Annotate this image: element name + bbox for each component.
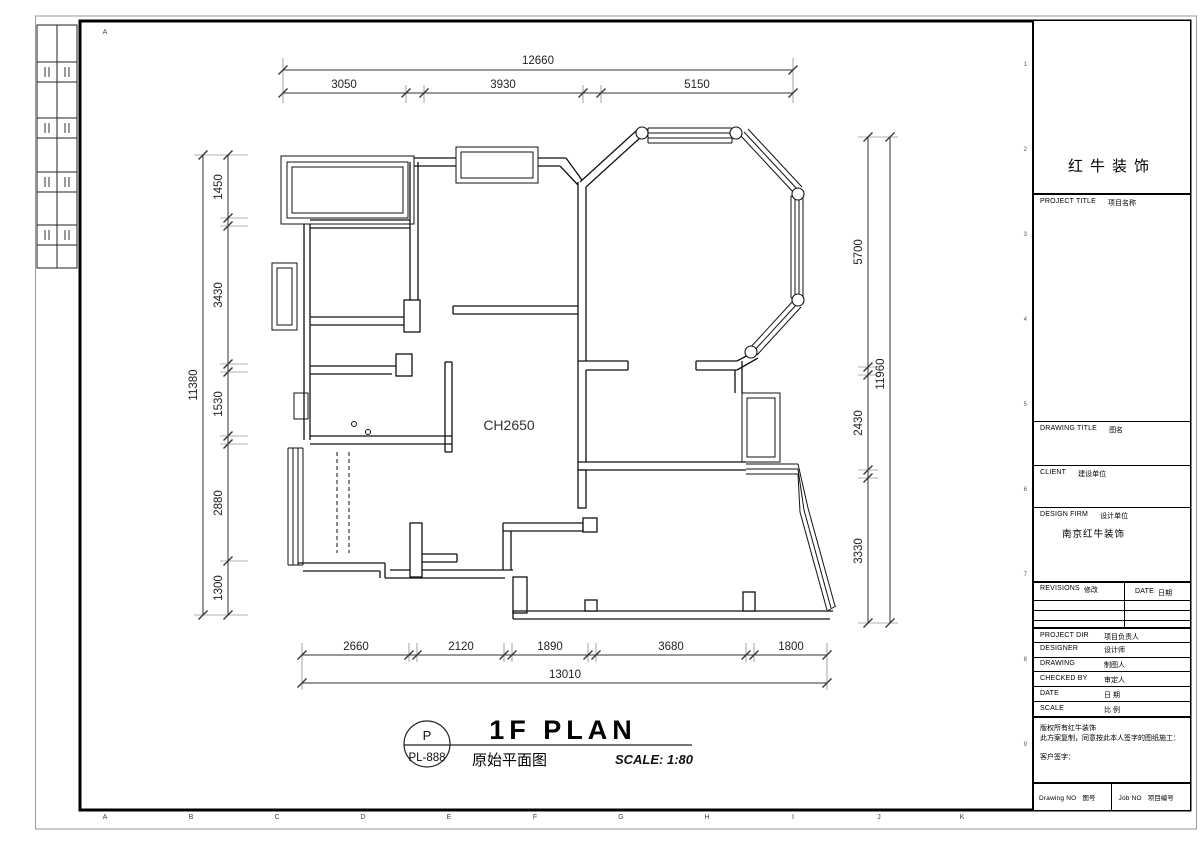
svg-text:C: C <box>274 814 279 821</box>
designer-row: DESIGNER设计师 <box>1034 642 1190 657</box>
client-signature-label: 客户签字： <box>1040 753 1188 763</box>
design-firm-label-zh: 设计单位 <box>1100 511 1128 521</box>
svg-text:4: 4 <box>1024 317 1028 323</box>
svg-text:2120: 2120 <box>448 641 474 653</box>
svg-text:6: 6 <box>1024 487 1028 493</box>
revisions-label-en: REVISIONS <box>1040 585 1080 592</box>
drawing-title-section: DRAWING TITLE 图名 <box>1034 421 1190 465</box>
revisions-label-zh: 修改 <box>1084 585 1098 595</box>
grid-letter-top: A <box>103 29 108 36</box>
svg-text:2660: 2660 <box>343 641 369 653</box>
checked-by-row: CHECKED BY审定人 <box>1034 671 1190 686</box>
project-title-label-zh: 项目名称 <box>1108 198 1136 208</box>
client-section: CLIENT 建设单位 <box>1034 465 1190 507</box>
left-reference-strip <box>37 25 77 268</box>
svg-text:1800: 1800 <box>778 641 804 653</box>
svg-text:5: 5 <box>1024 402 1028 408</box>
svg-text:5150: 5150 <box>684 79 710 91</box>
floor-plan-canvas: A A B C D E F G H I J K 1 2 3 4 5 6 7 8 … <box>0 0 1200 844</box>
svg-text:2880: 2880 <box>213 490 225 516</box>
svg-text:K: K <box>960 814 965 821</box>
brand-name: 红牛装饰 <box>1034 155 1190 176</box>
revisions-row <box>1034 600 1190 601</box>
project-dir-row: PROJECT DIR项目负责人 <box>1034 627 1190 642</box>
svg-text:E: E <box>447 814 452 821</box>
svg-text:1450: 1450 <box>213 174 225 200</box>
svg-text:8: 8 <box>1024 657 1028 663</box>
project-title-label-en: PROJECT TITLE <box>1040 198 1096 205</box>
scale-row: SCALE比 例 <box>1034 701 1190 716</box>
svg-text:5700: 5700 <box>853 239 865 265</box>
svg-text:13010: 13010 <box>549 669 581 681</box>
drawing-title-area: P PL-888 1F PLAN 原始平面图 SCALE: 1:80 <box>404 715 694 769</box>
svg-text:11960: 11960 <box>875 358 887 389</box>
project-title-section: PROJECT TITLE 项目名称 <box>1034 193 1190 421</box>
svg-text:J: J <box>877 814 881 821</box>
svg-text:I: I <box>792 814 794 821</box>
client-label-zh: 建设单位 <box>1078 469 1106 479</box>
date-row: DATE日 期 <box>1034 686 1190 701</box>
drawing-sheet: A A B C D E F G H I J K 1 2 3 4 5 6 7 8 … <box>0 0 1200 844</box>
svg-text:H: H <box>704 814 709 821</box>
sheet-frame <box>36 16 1197 829</box>
svg-text:3430: 3430 <box>213 282 225 308</box>
ceiling-height-label: CH2650 <box>483 417 535 433</box>
svg-text:1890: 1890 <box>537 641 563 653</box>
number-row: Drawing NO图号 Job NO项目编号 <box>1034 782 1190 810</box>
plan-windows <box>272 128 836 611</box>
copyright-notes: 版权所有红牛装饰 此方案复制，同意按此本人签字的图纸施工： 客户签字： <box>1034 716 1190 782</box>
svg-text:1530: 1530 <box>213 391 225 417</box>
title-block: 红牛装饰 PROJECT TITLE 项目名称 DRAWING TITLE 图名… <box>1032 21 1190 810</box>
svg-text:9: 9 <box>1024 742 1028 748</box>
drawing-no-cell: Drawing NO图号 <box>1034 784 1112 810</box>
svg-text:11380: 11380 <box>188 369 200 400</box>
job-no-cell: Job NO项目编号 <box>1114 784 1191 810</box>
drawing-row: DRAWING制图人 <box>1034 657 1190 672</box>
revisions-date-label-zh: 日期 <box>1158 588 1172 598</box>
plan-code-letter: P <box>423 728 432 743</box>
svg-text:3330: 3330 <box>853 538 865 564</box>
drawing-title-label-zh: 图名 <box>1109 425 1123 435</box>
plan-title-zh: 原始平面图 <box>472 752 547 769</box>
design-firm-label-en: DESIGN FIRM <box>1040 511 1088 518</box>
revisions-row <box>1034 620 1190 621</box>
svg-text:3680: 3680 <box>658 641 684 653</box>
svg-text:7: 7 <box>1024 572 1028 578</box>
revisions-row <box>1034 610 1190 611</box>
plan-scale: SCALE: 1:80 <box>615 752 694 767</box>
design-firm-value: 南京红牛装饰 <box>1062 526 1125 540</box>
svg-text:3050: 3050 <box>331 79 357 91</box>
svg-text:G: G <box>618 814 623 821</box>
svg-text:A: A <box>103 814 108 821</box>
svg-text:1: 1 <box>1024 62 1028 68</box>
svg-text:2: 2 <box>1024 147 1028 153</box>
svg-text:3930: 3930 <box>490 79 516 91</box>
note-line-2: 此方案复制，同意按此本人签字的图纸施工： <box>1040 734 1188 744</box>
plan-title-en: 1F PLAN <box>489 715 637 745</box>
dimension-lines <box>194 58 898 690</box>
client-label-en: CLIENT <box>1040 469 1066 476</box>
svg-text:12660: 12660 <box>522 55 554 67</box>
revisions-date-label-en: DATE <box>1135 588 1154 595</box>
drawing-title-label-en: DRAWING TITLE <box>1040 425 1097 432</box>
brand-section: 红牛装饰 <box>1034 21 1190 193</box>
revisions-table: REVISIONS 修改 DATE 日期 <box>1034 581 1190 627</box>
svg-text:1300: 1300 <box>213 575 225 601</box>
note-line-1: 版权所有红牛装饰 <box>1040 724 1188 734</box>
svg-text:2430: 2430 <box>853 410 865 436</box>
plan-code: PL-888 <box>408 752 445 764</box>
svg-text:F: F <box>533 814 537 821</box>
svg-text:D: D <box>360 814 365 821</box>
plan-walls <box>298 127 833 619</box>
svg-text:3: 3 <box>1024 232 1028 238</box>
design-firm-section: DESIGN FIRM 设计单位 南京红牛装饰 <box>1034 507 1190 581</box>
grid-references: A A B C D E F G H I J K 1 2 3 4 5 6 7 8 … <box>103 29 1028 821</box>
svg-text:B: B <box>189 814 194 821</box>
